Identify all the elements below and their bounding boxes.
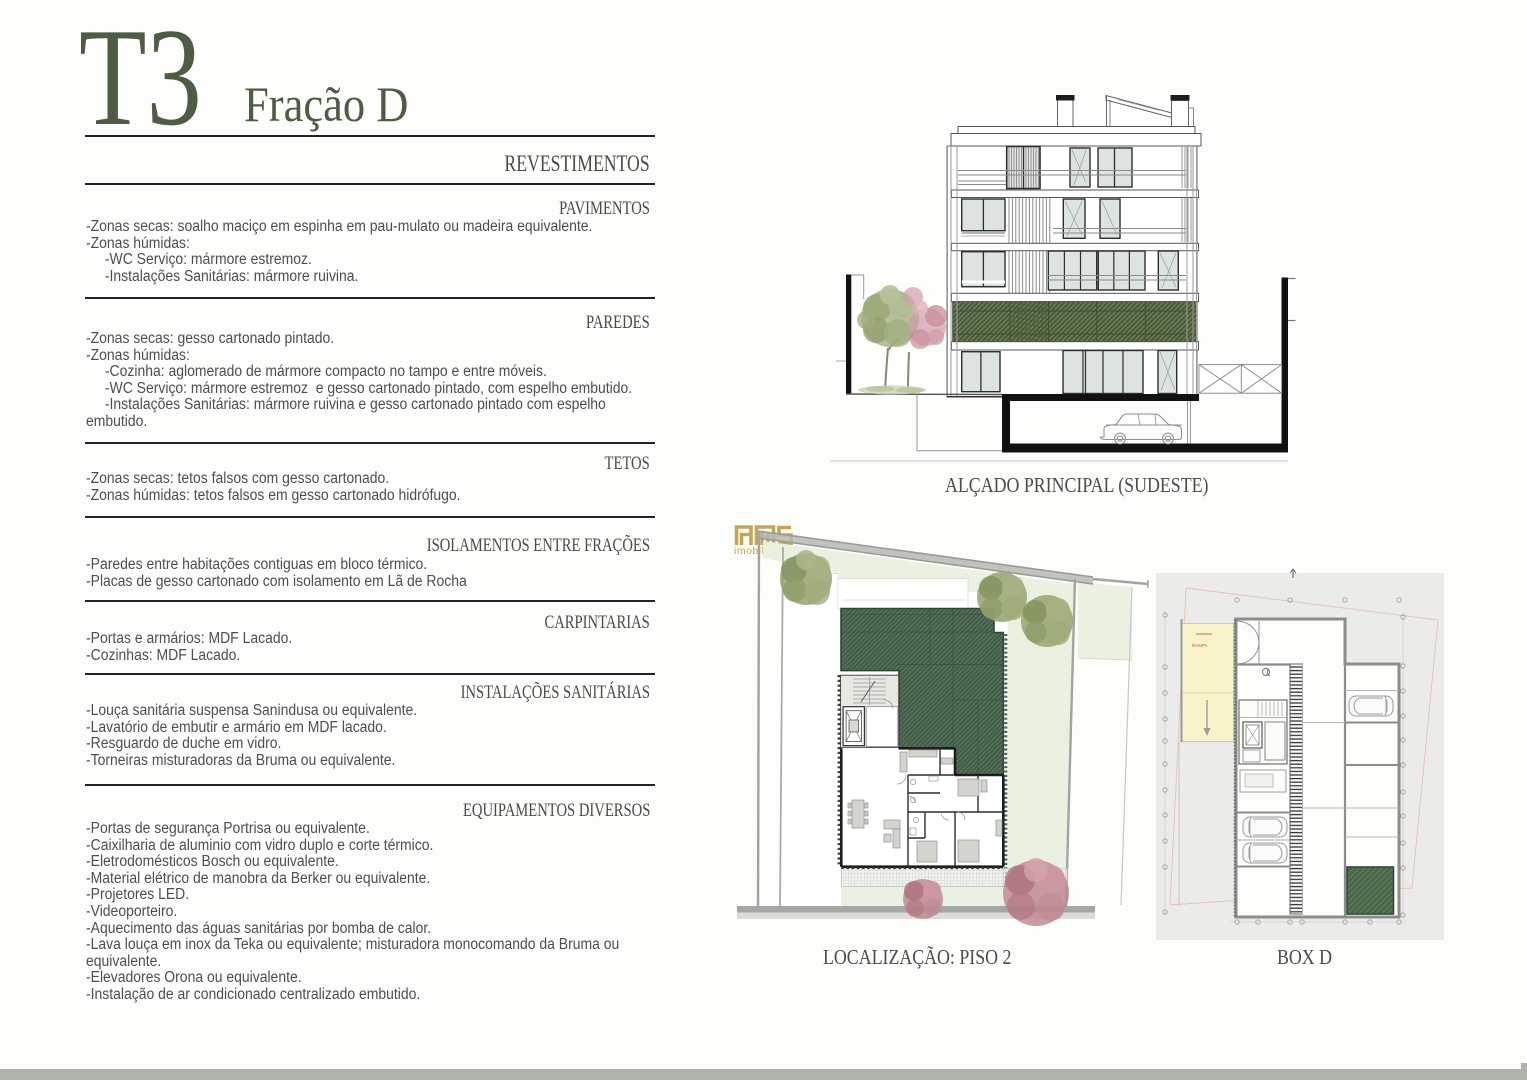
svg-text:RAMPA: RAMPA xyxy=(1192,643,1208,648)
